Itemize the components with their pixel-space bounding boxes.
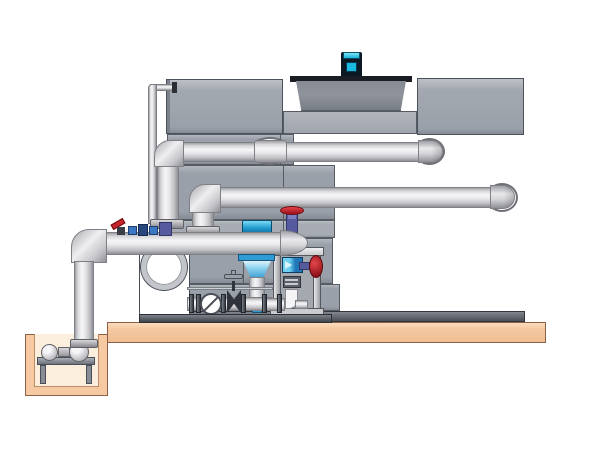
upper-header-pipe: [176, 142, 422, 162]
skid-support-rail: [187, 287, 273, 290]
cap-valve-red-handwheel: [280, 206, 304, 215]
fan-shroud-base-line: [301, 110, 401, 112]
makeup-valve-body: [117, 227, 125, 235]
ground-pipe-right-stub: [265, 298, 285, 311]
fan-recess-panel: [283, 111, 417, 134]
sump-drop-collar: [70, 339, 98, 348]
fan-motor-cap: [343, 52, 360, 59]
drain-elbow-stub: [295, 300, 308, 309]
gauge-panel-line-2: [285, 283, 298, 285]
sump-pump-motor: [41, 344, 58, 361]
tank-top-right-panel: [417, 78, 524, 135]
frame-red-handwheel: [309, 255, 323, 278]
upper-pipe-coupling: [254, 140, 287, 163]
sump-pump-stand-leg-right: [86, 365, 92, 384]
gate-valve-stem: [232, 281, 235, 291]
middle-pipe-left-elbow: [189, 184, 221, 213]
upper-pipe-drop: [157, 164, 179, 221]
blue-fitting-b: [149, 226, 158, 235]
fan-shroud: [296, 81, 406, 112]
upper-pipe-right-elbow: [418, 140, 443, 163]
ground-flange-4: [241, 294, 246, 313]
ground-flange-5: [262, 294, 267, 313]
overflow-pipe-flange: [172, 82, 177, 93]
sump-drop-pipe: [74, 261, 94, 346]
blue-fitting-a: [128, 226, 137, 235]
tank-top-left-panel: [166, 79, 283, 134]
skid-base: [139, 314, 332, 323]
gauge-panel-line-1: [285, 279, 298, 281]
purple-fitting: [159, 222, 172, 236]
middle-header-pipe: [212, 187, 494, 208]
middle-pipe-right-elbow: [490, 185, 515, 209]
sump-pump-stand-leg-left: [40, 365, 46, 384]
gauge-panel: [283, 276, 301, 288]
illustration-canvas: [0, 0, 600, 450]
suction-pipe-left-elbow: [71, 229, 107, 263]
suction-pipe: [100, 232, 286, 255]
ground-flange-6: [277, 294, 282, 313]
inline-pump-flange: [238, 254, 275, 261]
concrete-slab: [107, 322, 546, 343]
fan-motor-faceplate: [346, 62, 357, 72]
ground-flange-1: [189, 294, 194, 313]
gate-valve-handle-nub: [231, 270, 236, 275]
upper-pipe-left-elbow: [154, 140, 184, 167]
navy-fitting: [138, 224, 148, 236]
